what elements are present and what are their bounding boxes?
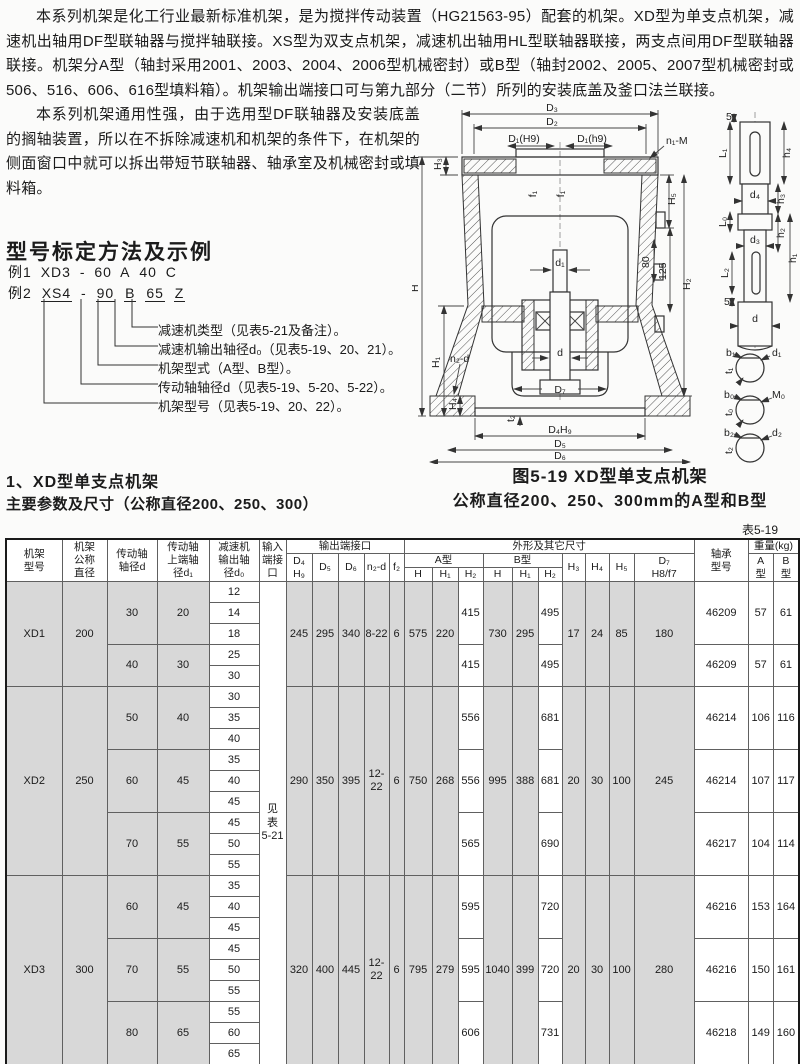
table-cell: 290 [286,687,312,876]
designation-leader-lines [8,299,158,411]
table-cell: 556 [458,750,483,813]
table-cell: 720 [538,876,562,939]
dim-label-H3: H₃ [432,158,444,170]
shaft-dim-d4: d₄ [750,189,760,201]
dim-label-D1H9: D₁(H9) [508,133,540,145]
section-title: 1、XD型单支点机架 [6,468,159,492]
table-cell: 46216 [694,876,748,939]
dim-label-H2: H₂ [681,278,693,290]
example-1: 例1 XD3 - 60 A 40 C [8,262,181,282]
table-cell: 30 [585,687,609,876]
table-cell: 104 [748,813,773,876]
table-cell: 395 [338,687,364,876]
section-label-d2: d₂ [772,427,782,439]
table-cell: 100 [609,876,634,1064]
table-header-cell: A型 [404,554,483,568]
dim-label-D3: D₃ [546,102,558,114]
shaft-dim-d: d [752,313,758,325]
table-cell: 55 [157,939,209,1002]
table-cell: 720 [538,939,562,1002]
dim-label-125: 125 [657,262,669,280]
table-cell: 164 [773,876,799,939]
table-cell: 150 [748,939,773,1002]
table-cell: 114 [773,813,799,876]
table-cell: 14 [209,603,259,624]
table-header-cell: 输入 端接 口 [259,539,286,582]
dim-label-H: H [412,284,421,292]
table-cell: 46214 [694,750,748,813]
table-header-cell: 减速机 输出轴 径d₀ [209,539,259,582]
figure-caption-line2: 公称直径200、250、300mm的A型和B型 [420,487,800,511]
table-header-cell: H₁ [432,568,458,582]
table-cell: 18 [209,624,259,645]
example-2-part: Z [174,285,186,302]
table-cell: 20 [562,687,585,876]
document-page: 本系列机架是化工行业最新标准机架，是为搅拌传动装置（HG21563-95）配套的… [0,0,800,1064]
section-label-t0: t₀ [723,409,735,416]
table-cell: 55 [209,981,259,1002]
versatility-paragraph: 本系列机架通用性强，由于选用型DF联轴器及安装底盖的搁轴装置，所以在不拆除减速机… [6,103,420,201]
table-cell: 25 [209,645,259,666]
table-cell: 80 [107,1002,157,1064]
dim-label-f1-left: f₁ [527,190,539,197]
table-cell: 60 [209,1023,259,1044]
table-cell: 1040 [483,876,512,1064]
dim-label-n2d: n₂-d [450,353,469,365]
table-cell: 40 [157,687,209,750]
table-cell: 46214 [694,687,748,750]
table-cell: 30 [585,876,609,1064]
table-cell: 388 [512,687,538,876]
table-cell: 690 [538,813,562,876]
table-cell: 40 [107,645,157,687]
table-cell: 45 [209,792,259,813]
dim-label-80: 80 [640,256,652,268]
dim-label-D2: D₂ [546,116,558,128]
table-cell: 50 [107,687,157,750]
table-cell: 220 [432,582,458,687]
table-cell: 100 [609,687,634,876]
frame-cross-section-diagram: D₃ D₂ D₁(H9) D₁(h9) n₁-M f₁ f₁ H₃ H H₁ n… [412,100,800,464]
table-cell: 268 [432,687,458,876]
dim-label-t2: t₂ [505,415,517,422]
shaft-dim-L2: L₂ [719,268,731,278]
table-cell: 415 [458,645,483,687]
shaft-dim-L0: L₀ [717,217,729,227]
dim-label-D1h9: D₁(h9) [577,133,607,145]
table-cell: 61 [773,645,799,687]
table-cell: 8-22 [364,582,389,687]
table-cell: 46209 [694,645,748,687]
section-subtitle: 主要参数及尺寸（公称直径200、250、300） [6,493,318,514]
table-cell: 20 [157,582,209,645]
table-cell: 107 [748,750,773,813]
table-cell: 35 [209,876,259,897]
table-cell: 24 [585,582,609,687]
table-cell: 117 [773,750,799,813]
table-header-cell: n₂-d [364,554,389,582]
table-cell: 40 [209,771,259,792]
table-cell: 17 [562,582,585,687]
dim-label-H1: H₁ [430,356,442,368]
table-cell: 606 [458,1002,483,1064]
table-header-cell: B型 [483,554,562,568]
section-label-t1: t₁ [723,367,735,374]
shaft-dim-5-top: 5 [726,111,732,123]
table-cell: 295 [512,582,538,687]
table-cell: 595 [458,939,483,1002]
table-cell: 12-22 [364,687,389,876]
table-header-cell: H₁ [512,568,538,582]
table-cell: 279 [432,876,458,1064]
table-cell: 46218 [694,1002,748,1064]
table-cell: 30 [209,666,259,687]
dim-label-D7: D₇ [554,384,566,396]
table-cell: 161 [773,939,799,1002]
section-label-b0: b₀ [724,389,734,401]
table-cell: 65 [209,1044,259,1064]
shaft-dim-h1: h₁ [787,253,799,263]
shaft-dim-h2: h₂ [775,228,787,238]
table-cell: 50 [209,834,259,855]
table-header-cell: 外形及其它尺寸 [404,539,694,554]
table-cell: 280 [634,876,694,1064]
dim-label-D6: D₆ [554,450,566,462]
table-cell: 61 [773,582,799,645]
callout-frame-style: 机架型式（A型、B型）。 [158,358,299,377]
table-cell: 40 [209,729,259,750]
table-header-cell: 轴承 型号 [694,539,748,582]
table-cell: 681 [538,750,562,813]
table-cell: 575 [404,582,432,687]
table-header-cell: H₂ [538,568,562,582]
table-header-cell: 输出端接口 [286,539,404,554]
table-cell: 160 [773,1002,799,1064]
table-cell: 50 [209,960,259,981]
example-1-part: 60 [94,264,112,280]
table-cell: 565 [458,813,483,876]
table-cell: 415 [458,582,483,645]
table-cell: 20 [562,876,585,1064]
table-cell: 60 [107,750,157,813]
shaft-dim-L1: L₁ [717,148,729,158]
table-cell: 116 [773,687,799,750]
table-header-cell: H [483,568,512,582]
table-cell: 57 [748,582,773,645]
table-header-cell: 传动轴 轴径d [107,539,157,582]
table-header-cell: H₂ [458,568,483,582]
parameter-table: 机架 型号机架 公称 直径传动轴 轴径d传动轴 上端轴 径d₁减速机 输出轴 径… [5,538,800,1064]
table-cell: XD1 [6,582,62,687]
shaft-dim-h3: h₃ [775,194,787,204]
dim-label-d: d [557,347,563,359]
table-cell: 445 [338,876,364,1064]
table-header-cell: D₄ H₉ [286,554,312,582]
dim-label-n1M: n₁-M [666,135,688,147]
callout-frame-model: 机架型号（见表5-19、20、22）。 [158,396,349,415]
table-cell: 340 [338,582,364,687]
table-header-cell: D₅ [312,554,338,582]
table-header-cell: H₅ [609,554,634,582]
table-cell: 795 [404,876,432,1064]
table-header-cell: B 型 [773,554,799,582]
section-label-M0: M₀ [772,389,785,401]
table-cell: 12-22 [364,876,389,1064]
table-header-cell: H₃ [562,554,585,582]
shaft-dim-d3: d₃ [750,234,760,246]
table-cell: 730 [483,582,512,687]
table-cell: 46209 [694,582,748,645]
table-cell: 46217 [694,813,748,876]
dim-label-D5: D₅ [554,438,566,450]
figure-caption-line1: 图5-19 XD型单支点机架 [420,462,800,487]
table-cell: 245 [634,687,694,876]
table-cell: 12 [209,582,259,603]
table-cell: 731 [538,1002,562,1064]
example-1-part: - [80,264,86,280]
table-cell: 180 [634,582,694,687]
table-cell: 30 [209,687,259,708]
table-cell: 45 [209,813,259,834]
table-header-cell: 机架 公称 直径 [62,539,107,582]
table-cell: 6 [389,582,404,687]
table-cell: 35 [209,708,259,729]
table-cell: 35 [209,750,259,771]
callout-drive-shaft: 传动轴轴径d（见表5-19、5-20、5-22）。 [158,377,393,396]
table-header-cell: 机架 型号 [6,539,62,582]
table-cell: 320 [286,876,312,1064]
table-cell: 250 [62,687,107,876]
table-header-cell: D₇ H8/f7 [634,554,694,582]
table-cell: 65 [157,1002,209,1064]
table-header-cell: H₄ [585,554,609,582]
table-cell: XD3 [6,876,62,1064]
table-cell: 106 [748,687,773,750]
dim-label-H5: H₅ [666,193,678,205]
table-header-cell: D₆ [338,554,364,582]
table-reference-label: 表5-19 [742,521,778,538]
table-cell: 681 [538,687,562,750]
table-cell: 149 [748,1002,773,1064]
table-cell: 45 [157,876,209,939]
table-cell: 399 [512,876,538,1064]
table-cell: 见 表 5-21 [259,582,286,1064]
example-1-part: 40 [139,264,157,280]
dim-label-D4H9: D₄H₉ [548,424,572,436]
table-cell: 45 [209,918,259,939]
table-cell: 55 [209,855,259,876]
table-cell: 57 [748,645,773,687]
callout-reducer-type: 减速机类型（见表5-21及备注）。 [158,320,347,339]
example-1-part: XD3 [41,264,71,280]
table-cell: 495 [538,582,562,645]
example-1-part: A [120,264,130,280]
table-cell: 300 [62,876,107,1064]
table-cell: 6 [389,876,404,1064]
section-label-d1: d₁ [772,347,782,359]
shaft-dim-5-bottom: 5 [724,296,730,308]
section-label-b1: b₁ [726,347,736,359]
table-cell: 30 [157,645,209,687]
table-cell: 200 [62,582,107,687]
table-cell: 46216 [694,939,748,1002]
callout-output-shaft: 减速机输出轴径d₀（见表5-19、20、21）。 [158,339,401,358]
table-header-cell: 重量(kg) [748,539,799,554]
table-cell: 40 [209,897,259,918]
table-cell: XD2 [6,687,62,876]
table-cell: 350 [312,687,338,876]
table-cell: 595 [458,876,483,939]
table-cell: 750 [404,687,432,876]
shaft-dim-h4: h₄ [781,148,793,158]
table-cell: 55 [209,1002,259,1023]
section-label-t2: t₂ [723,447,735,454]
table-cell: 45 [157,750,209,813]
table-cell: 30 [107,582,157,645]
table-cell: 556 [458,687,483,750]
table-cell: 45 [209,939,259,960]
table-cell: 60 [107,876,157,939]
table-cell: 295 [312,582,338,687]
table-cell: 400 [312,876,338,1064]
table-header-cell: A 型 [748,554,773,582]
example-1-prefix: 例1 [8,264,32,280]
dim-label-H4: H₄ [447,398,459,410]
table-header-cell: 传动轴 上端轴 径d₁ [157,539,209,582]
intro-paragraph: 本系列机架是化工行业最新标准机架，是为搅拌传动装置（HG21563-95）配套的… [6,5,794,103]
section-label-b2: b₂ [724,427,734,439]
table-header-cell: f₂ [389,554,404,582]
dim-label-d1: d₁ [555,257,565,269]
table-cell: 70 [107,813,157,876]
table-cell: 70 [107,939,157,1002]
table-cell: 153 [748,876,773,939]
table-cell: 495 [538,645,562,687]
table-header-cell: H [404,568,432,582]
table-cell: 995 [483,687,512,876]
dim-label-f1-right: f₁ [555,190,567,197]
table-cell: 55 [157,813,209,876]
table-cell: 6 [389,687,404,876]
table-cell: 85 [609,582,634,687]
table-cell: 245 [286,582,312,687]
example-1-part: C [166,264,177,280]
